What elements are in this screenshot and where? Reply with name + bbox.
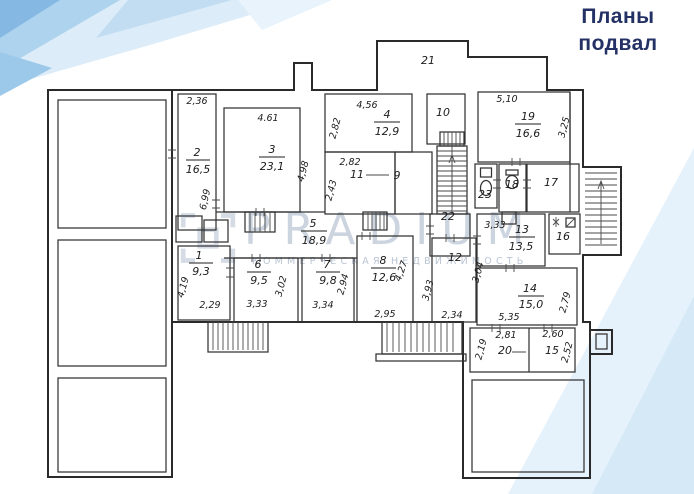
room-11-number: 11: [350, 168, 364, 181]
room-18-number: 18: [505, 178, 519, 191]
room-6-area: 9,5: [250, 274, 268, 287]
room-23-number: 23: [478, 188, 492, 201]
room-8-number: 8: [380, 254, 387, 267]
room-14-area: 15,0: [519, 298, 544, 311]
room-6-number: 6: [255, 258, 262, 271]
room-12-dim-side: 3,93: [421, 279, 437, 302]
room-17-number: 17: [544, 176, 558, 189]
room-20-number: 20: [498, 344, 512, 357]
page-title: Планы подвал: [546, 3, 690, 57]
room-7-dim-bottom: 3,34: [312, 300, 333, 311]
room-10-number: 10: [436, 106, 450, 119]
room-2-dim-side: 6,99: [198, 188, 213, 211]
room-2-number: 2: [194, 146, 201, 159]
room-6-dim-bottom: 3,33: [246, 299, 267, 310]
room-7-number: 7: [324, 258, 331, 271]
room-2-area: 16,5: [186, 163, 211, 176]
room-13-dim-top: 3,33: [484, 220, 505, 231]
room-14-number: 14: [523, 282, 537, 295]
room-15-dim-side: 2,52: [560, 341, 576, 364]
room-20-dim-side: 2,19: [474, 338, 490, 361]
floor-plan-drawing: 2,36 2 16,5 6,99 4.61 3 23,1 4,98 4,56 4…: [0, 0, 694, 494]
room-2-dim-top: 2,36: [186, 96, 207, 107]
room-14-dim-bottom: 5,35: [498, 312, 519, 323]
room-11-dim-side: 2,43: [324, 179, 340, 202]
room-1-area: 9,3: [192, 265, 210, 278]
room-4-dim-side: 2,82: [328, 117, 344, 140]
room-7-area: 9,8: [319, 274, 337, 287]
title-line-2: подвал: [546, 30, 690, 57]
room-12-number: 12: [448, 251, 462, 264]
room-5-number: 5: [310, 217, 317, 230]
room-19-dim-top: 5,10: [496, 94, 517, 105]
scanned-floor-plan-page: PRADIUM КОММЕРЧЕСКАЯ НЕДВИЖИМОСТЬ: [0, 0, 694, 494]
room-3-number: 3: [269, 143, 276, 156]
title-line-1: Планы: [546, 3, 690, 30]
room-14-dim-side: 2,79: [558, 291, 574, 314]
room-22-number: 22: [441, 210, 455, 223]
room-8-dim-bottom: 2,95: [374, 309, 395, 320]
room-13-dim-side: 3,04: [471, 261, 487, 284]
room-3-area: 23,1: [260, 160, 285, 173]
room-11-dim-top: 2,82: [339, 157, 360, 168]
room-6-dim-side: 3,02: [274, 275, 290, 298]
room-8-dim-side: 4,27: [393, 259, 411, 283]
room-4-area: 12,9: [375, 125, 400, 138]
room-4-number: 4: [384, 108, 391, 121]
room-3-dim-side: 4,98: [296, 160, 312, 183]
room-1-dim-bottom: 2,29: [199, 300, 220, 311]
room-4-dim-top: 4,56: [356, 100, 377, 111]
room-19-area: 16,6: [516, 127, 541, 140]
room-labels: 2,36 2 16,5 6,99 4.61 3 23,1 4,98 4,56 4…: [176, 54, 576, 364]
room-16-number: 16: [556, 230, 570, 243]
room-19-number: 19: [521, 110, 535, 123]
room-5-area: 18,9: [302, 234, 327, 247]
room-15-number: 15: [545, 344, 559, 357]
room-12-dim-bottom: 2,34: [441, 310, 462, 321]
room-1-number: 1: [196, 249, 203, 262]
room-20-dim-top: 2,81: [495, 330, 516, 341]
room-3-dim-top: 4.61: [257, 113, 278, 124]
room-13-area: 13,5: [509, 240, 534, 253]
walls-outer: [48, 41, 621, 478]
room-7-dim-side: 2,94: [336, 273, 352, 296]
room-21-number: 21: [421, 54, 435, 67]
room-13-number: 13: [515, 223, 529, 236]
electrical-symbols: [553, 217, 575, 227]
room-15-dim-top: 2,60: [542, 329, 563, 340]
room-9-number: 9: [394, 169, 401, 182]
